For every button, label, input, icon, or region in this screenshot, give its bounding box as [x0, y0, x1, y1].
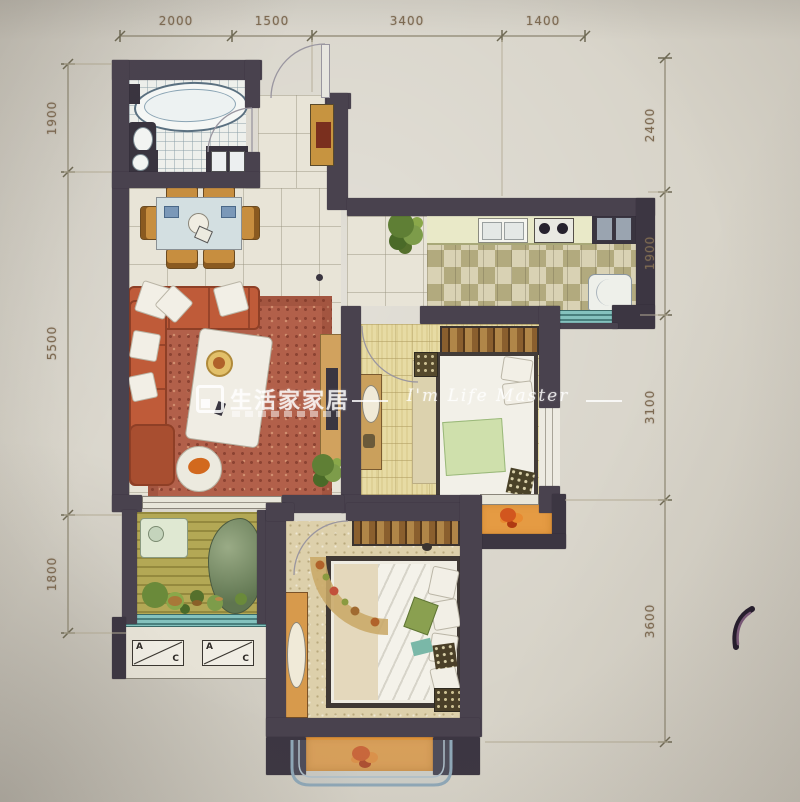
bed-blanket-green: [442, 418, 506, 476]
living-balcony-slider: [142, 496, 282, 509]
dimension-label-right: 3600: [643, 604, 657, 639]
watermark: 生活家家居 I'm Life Master: [190, 380, 610, 422]
hallway-floor: [347, 216, 427, 306]
bedroom-balcony-window: [480, 494, 539, 505]
sofa-pillow: [128, 372, 159, 403]
kitchen-window-pane: [596, 217, 613, 241]
ac-unit: A C: [132, 640, 184, 666]
shower-pane: [229, 151, 245, 172]
plant-living: [312, 454, 334, 476]
garden-rock: [208, 518, 264, 614]
ac-label-c: C: [242, 654, 249, 664]
stove-burner: [557, 223, 568, 234]
bed-cushion-dark: [506, 468, 536, 498]
sofa-pillow: [129, 330, 161, 362]
brand-logo: [196, 385, 224, 413]
dining-chair: [166, 248, 198, 269]
dimension-label-top: 1400: [526, 14, 561, 28]
fridge-curve: [596, 279, 623, 306]
dimension-label-right: 1900: [643, 236, 657, 271]
wall: [554, 323, 618, 329]
dimension-label-left: 1800: [45, 557, 59, 592]
wall: [433, 737, 480, 775]
watermark-dash-right: [586, 400, 622, 402]
washing-machine-door: [148, 526, 164, 542]
garden-pebbles: [168, 596, 182, 606]
washing-machine: [140, 518, 188, 558]
ac-label-a: A: [206, 642, 213, 652]
floor-plan-sheet: A C A C: [0, 0, 800, 802]
ac-label-c: C: [172, 654, 179, 664]
sink-bowl: [132, 154, 149, 171]
dresser-mirror: [287, 622, 306, 688]
wall: [112, 60, 262, 80]
sofa-chaise: [129, 424, 175, 486]
wall: [122, 510, 137, 624]
entry-door-leaf: [321, 44, 330, 98]
master-bed-sheet: [334, 564, 380, 700]
master-cushion-dark: [432, 643, 457, 670]
watermark-subtext: [232, 411, 340, 417]
wall: [460, 495, 482, 737]
bedroom-wardrobe: [440, 326, 539, 355]
dimension-label-right: 3100: [643, 390, 657, 425]
wall: [245, 60, 260, 108]
garden-shrubs: [142, 582, 168, 608]
dining-chair: [240, 206, 260, 240]
nightstand: [414, 352, 438, 377]
dimension-label-top: 1500: [255, 14, 290, 28]
dimension-label-left: 5500: [45, 326, 59, 361]
wall: [612, 305, 655, 329]
wall: [112, 617, 126, 679]
balcony-flower: [500, 508, 516, 522]
dining-chair: [203, 248, 235, 269]
garden-sill-teal: [125, 614, 271, 627]
brand-logo-square: [201, 399, 210, 408]
dimension-label-right: 2400: [643, 108, 657, 143]
wall: [266, 503, 294, 521]
dimension-label-top: 2000: [159, 14, 194, 28]
shoe-cabinet-inset: [316, 122, 331, 148]
dining-dish: [164, 206, 179, 218]
dimension-label-top: 3400: [390, 14, 425, 28]
kitchen-sink-basin: [482, 222, 502, 240]
stove-burner: [539, 223, 550, 234]
wall: [266, 737, 306, 775]
bath-shelf: [128, 84, 140, 104]
dining-dish: [221, 206, 236, 218]
master-nightstand: [434, 688, 462, 712]
ac-unit: A C: [202, 640, 254, 666]
wall: [112, 60, 129, 512]
kitchen-sink-basin: [504, 222, 524, 240]
desk-item: [363, 434, 375, 448]
pen-squiggle: [735, 609, 752, 647]
wall: [347, 198, 655, 216]
wall: [266, 718, 480, 737]
kitchen-window-pane: [615, 217, 632, 241]
column-dot: [316, 274, 323, 281]
ac-label-a: A: [136, 642, 143, 652]
floor-plan-photo: A C A C: [0, 0, 800, 802]
master-wardrobe: [352, 518, 460, 546]
balcony-flower: [352, 746, 370, 761]
master-dot: [422, 543, 432, 551]
shower-pane: [211, 151, 227, 172]
dimension-label-left: 1900: [45, 101, 59, 136]
wall: [112, 172, 260, 188]
wall: [468, 534, 566, 549]
coffee-table-plate-food: [213, 357, 225, 369]
toilet-seat: [133, 127, 153, 152]
wall: [266, 503, 286, 737]
watermark-dash-left: [352, 400, 388, 402]
watermark-script: I'm Life Master: [398, 386, 578, 406]
